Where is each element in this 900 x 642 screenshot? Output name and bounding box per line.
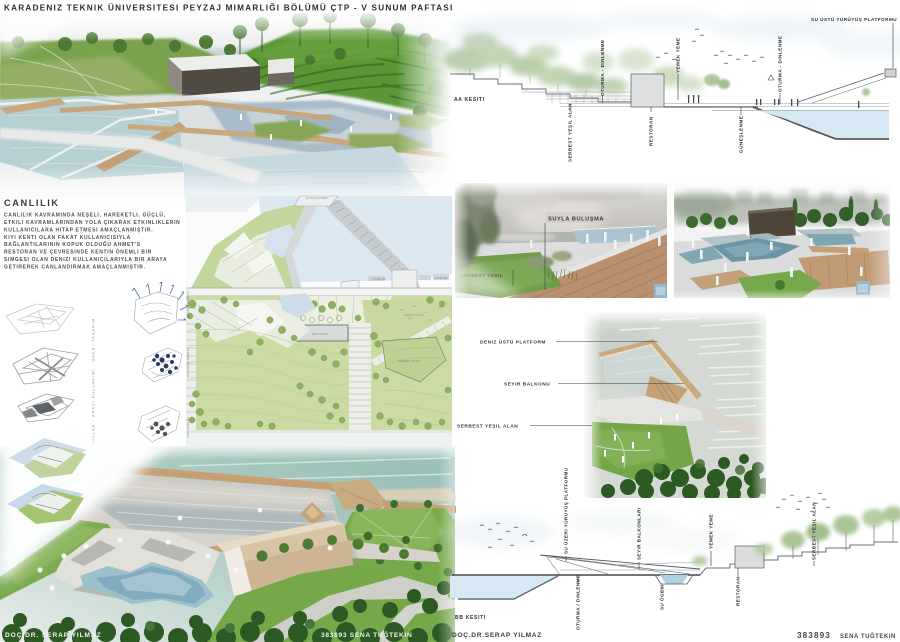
svg-text:RESTORAN VE ÇEVRESINDE KENTIN: RESTORAN VE ÇEVRESINDE KENTIN ÖNEMLI BIR (4, 249, 152, 256)
svg-text:YEMEK YEME: YEMEK YEME (676, 37, 681, 73)
svg-text:SIMGESI OLAN DENIZI KULLANICIL: SIMGESI OLAN DENIZI KULLANICILARIYLA BIR… (4, 257, 167, 263)
svg-text:DOÇ.DR. SERAP YILMAZ: DOÇ.DR. SERAP YILMAZ (5, 632, 102, 639)
svg-text:SEYIR BALKONLARI: SEYIR BALKONLARI (637, 507, 642, 560)
svg-text:383893 SENA TUĞTEKIN: 383893 SENA TUĞTEKIN (321, 630, 412, 639)
svg-text:DENIZ ÜSTÜ PLATFORM: DENIZ ÜSTÜ PLATFORM (480, 339, 546, 346)
svg-text:CANLILIK KAVRAMINDA NEŞELI, HA: CANLILIK KAVRAMINDA NEŞELI, HAREKETLI, G… (4, 212, 166, 219)
svg-text:OTURMA - DINLENME: OTURMA - DINLENME (778, 35, 783, 92)
svg-text:YEMEK YEME: YEMEK YEME (709, 514, 714, 549)
svg-text:SU ÖGESI: SU ÖGESI (659, 584, 665, 610)
svg-text:KIYI KENTI OLAN FAKAT KULLANIC: KIYI KENTI OLAN FAKAT KULLANICISIYLA (4, 235, 131, 241)
svg-text:ETKILI KAVRAMLARINDAN YOLA ÇIK: ETKILI KAVRAMLARINDAN YOLA ÇIKARAK ETKIN… (4, 220, 180, 226)
svg-text:SU ÜZERI YÜRÜYÜŞ PLATFORMU: SU ÜZERI YÜRÜYÜŞ PLATFORMU (563, 467, 569, 554)
svg-text:RESTORAN: RESTORAN (736, 576, 741, 606)
svg-text:GETIREREK CANLANDIRMAK AMAÇLAN: GETIREREK CANLANDIRMAK AMAÇLANMIŞTIR. (4, 264, 146, 270)
svg-text:OTOPARK: OTOPARK (434, 276, 448, 280)
svg-text:CANLILIK: CANLILIK (4, 198, 60, 208)
svg-text:SEYIR BALKONU: SEYIR BALKONU (504, 382, 550, 388)
svg-text:OTOPARK: OTOPARK (372, 277, 386, 281)
svg-text:RÜZGAR ANALIZI: RÜZGAR ANALIZI (186, 291, 190, 318)
svg-text:383893: 383893 (797, 631, 831, 640)
svg-text:DOÇ.DR.SERAP YILMAZ: DOÇ.DR.SERAP YILMAZ (452, 632, 542, 639)
svg-text:BAĞLANTILARININ KOPUK OLDUĞU A: BAĞLANTILARININ KOPUK OLDUĞU AHMET'S (4, 240, 141, 248)
svg-text:KULLANICILARA HITAP ETMESI AMA: KULLANICILARA HITAP ETMESI AMAÇLANMIŞTIR… (4, 227, 153, 233)
svg-text:GÜNEŞLENME: GÜNEŞLENME (738, 116, 744, 153)
svg-text:SERBEST YEŞIL ALAN: SERBEST YEŞIL ALAN (812, 502, 817, 560)
svg-text:RESTORAN: RESTORAN (312, 332, 328, 336)
svg-text:SENA TUĞTEKIN: SENA TUĞTEKIN (840, 632, 896, 640)
svg-text:KULLANIM ŞEMASI: KULLANIM ŞEMASI (186, 348, 190, 378)
svg-text:ÇOCUK OYUN: ÇOCUK OYUN (404, 313, 424, 317)
svg-text:KARADENIZ TEKNIK ÜNIVERSITESI: KARADENIZ TEKNIK ÜNIVERSITESI PEYZAJ MIM… (4, 2, 453, 13)
svg-text:BB KESITI: BB KESITI (455, 615, 486, 621)
svg-text:SU ÜSTÜ YÜRÜYÜŞ PLATFORMU: SU ÜSTÜ YÜRÜYÜŞ PLATFORMU (811, 16, 897, 22)
svg-text:SU PLATFORMU: SU PLATFORMU (306, 196, 329, 200)
svg-text:SUYLA BULUŞMA: SUYLA BULUŞMA (548, 217, 604, 223)
svg-text:AA KESITI: AA KESITI (454, 97, 485, 103)
svg-text:SERBEST YEŞIL ALAN: SERBEST YEŞIL ALAN (457, 424, 518, 430)
svg-text:SERBEST ALAN: SERBEST ALAN (398, 359, 420, 363)
svg-text:RESTORAN: RESTORAN (649, 116, 654, 146)
svg-text:YAPI ANALIZI: YAPI ANALIZI (186, 417, 190, 438)
svg-text:OTURMA - DINLENME: OTURMA - DINLENME (600, 39, 605, 96)
